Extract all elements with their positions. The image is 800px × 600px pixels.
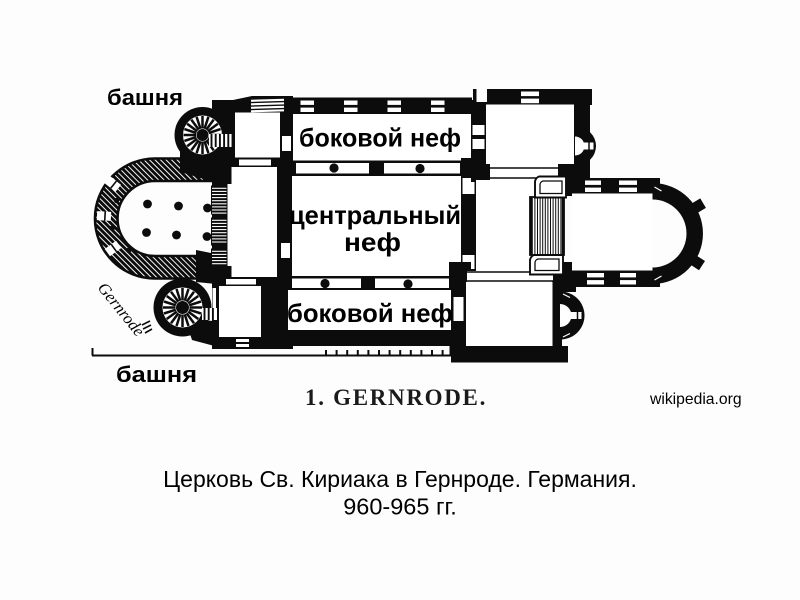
svg-text:wikipedia.org: wikipedia.org: [649, 391, 742, 408]
svg-text:боковой неф: боковой неф: [287, 298, 453, 328]
svg-text:Церковь Св. Кириака в Гернроде: Церковь Св. Кириака в Гернроде. Германия…: [163, 466, 637, 492]
svg-text:неф: неф: [344, 227, 401, 257]
svg-text:центральный: центральный: [289, 200, 461, 230]
svg-text:960-965 гг.: 960-965 гг.: [343, 494, 457, 520]
svg-text:башня: башня: [116, 362, 197, 387]
svg-text:башня: башня: [107, 85, 183, 110]
svg-text:1. GERNRODE.: 1. GERNRODE.: [305, 385, 487, 410]
svg-text:боковой неф: боковой неф: [299, 123, 461, 153]
